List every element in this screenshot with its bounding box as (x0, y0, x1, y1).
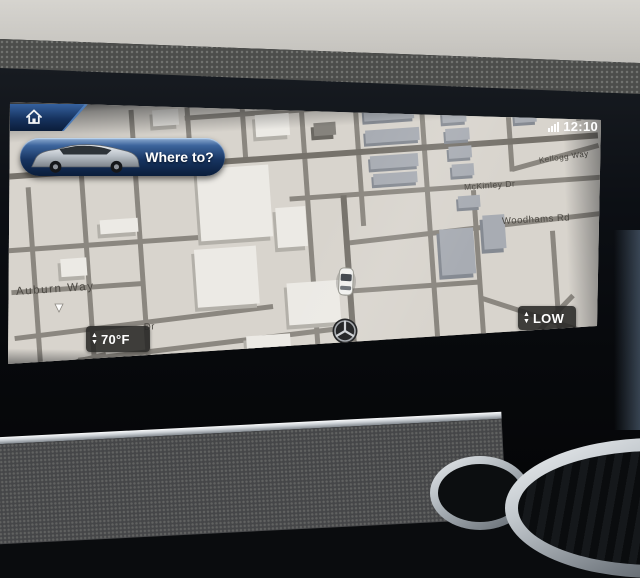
mercedes-star-logo (333, 319, 358, 344)
home-icon (24, 107, 44, 127)
temperature-up-icon[interactable]: ▲ (91, 332, 98, 339)
map-level-down-icon[interactable]: ▼ (523, 318, 530, 325)
where-to-button[interactable]: Where to? (20, 138, 225, 176)
temperature-control[interactable]: ▲ ▼ 70°F (86, 326, 150, 352)
map-level-label: LOW (533, 311, 571, 326)
air-vent-right-inner (518, 451, 640, 565)
map-level-up-icon[interactable]: ▲ (523, 311, 530, 318)
signal-icon (548, 121, 559, 132)
right-edge-reflection (614, 230, 640, 430)
suv-image (26, 140, 144, 174)
temperature-down-icon[interactable]: ▼ (91, 339, 98, 346)
where-to-label: Where to? (144, 149, 225, 165)
infotainment-screen: Auburn Way McKinley Dr Woodhams Rd Kello… (8, 98, 604, 368)
map-level-control[interactable]: ▲ ▼ LOW (518, 306, 576, 330)
clock: 12:10 (563, 119, 598, 134)
temperature-value: 70°F (101, 332, 137, 347)
status-bar: 12:10 (542, 118, 598, 134)
dashboard-photo: { "status_bar": { "time": "12:10", "sign… (0, 0, 640, 480)
